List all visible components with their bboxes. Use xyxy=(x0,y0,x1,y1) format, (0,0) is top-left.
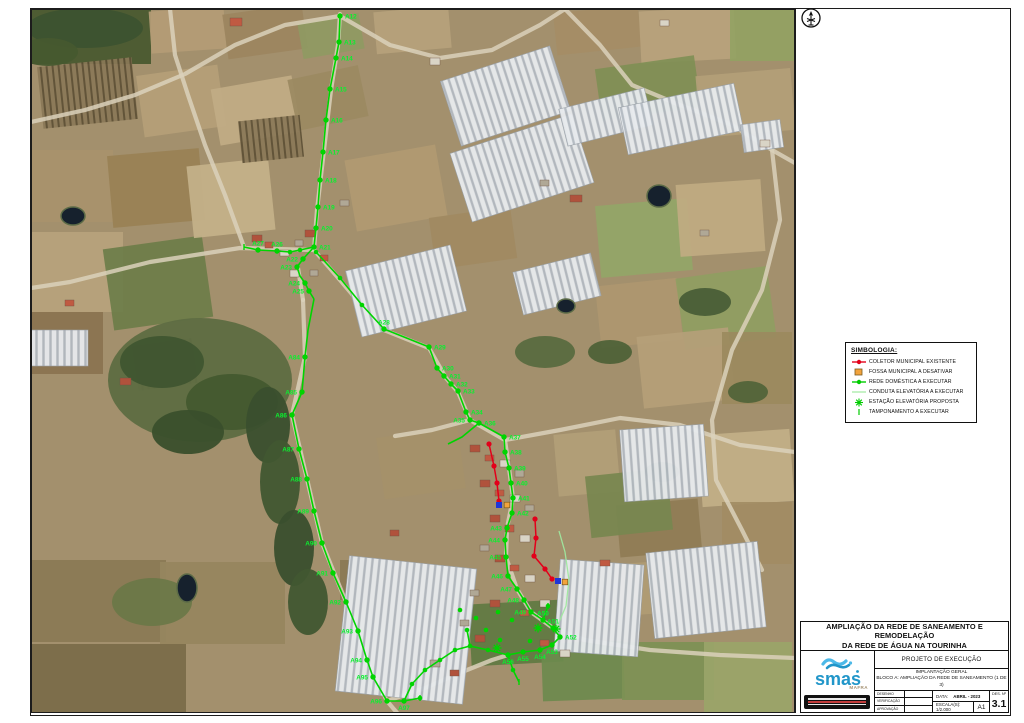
legend-box: SIMBOLOGIA: COLETOR MUNICIPAL EXISTENTEF… xyxy=(845,342,977,423)
legend-item-label: FOSSA MUNICIPAL A DESATIVAR xyxy=(869,369,953,375)
svg-text:A32: A32 xyxy=(456,381,468,388)
scale-value: ESCALA(S): 1/2.000 xyxy=(933,702,973,712)
legend-title: SIMBOLOGIA: xyxy=(851,347,971,354)
svg-text:A49: A49 xyxy=(514,609,526,616)
green-tick-icon xyxy=(851,408,869,416)
svg-text:A54: A54 xyxy=(534,654,546,661)
drawing-subtitle: IMPLANTAÇÃO GERAL BLOCO A: AMPLIAÇÃO DA … xyxy=(875,669,1008,691)
svg-text:A33: A33 xyxy=(463,388,475,395)
smas-logo: smas xyxy=(809,655,867,689)
svg-text:A42: A42 xyxy=(517,510,529,517)
svg-text:A36: A36 xyxy=(484,420,496,427)
legend-item-label: TAMPONAMENTO A EXECUTAR xyxy=(869,409,949,415)
signature-row: APROVAÇÃO xyxy=(875,706,932,712)
svg-text:A53: A53 xyxy=(546,649,558,656)
legend-item-label: CONDUTA ELEVATÓRIA A EXECUTAR xyxy=(869,389,963,395)
svg-text:A52: A52 xyxy=(565,634,577,641)
company-logo-cell: smas MAFRA xyxy=(801,651,875,712)
svg-text:A28: A28 xyxy=(378,320,390,327)
svg-text:A18: A18 xyxy=(325,177,337,184)
svg-text:A96: A96 xyxy=(370,698,382,705)
title-block: AMPLIAÇÃO DA REDE DE SANEAMENTO E REMODE… xyxy=(800,621,1009,714)
drawing-title: AMPLIAÇÃO DA REDE DE SANEAMENTO E REMODE… xyxy=(800,621,1009,651)
svg-text:A50: A50 xyxy=(537,611,549,618)
svg-text:A40: A40 xyxy=(516,480,528,487)
svg-text:A12: A12 xyxy=(345,13,357,20)
paper-format: A1 xyxy=(973,702,989,712)
svg-text:A31: A31 xyxy=(449,373,461,380)
svg-text:A13: A13 xyxy=(344,39,356,46)
svg-text:A94: A94 xyxy=(350,657,362,664)
legend-item-label: REDE DOMÉSTICA A EXECUTAR xyxy=(869,379,952,385)
signature-value xyxy=(905,698,932,704)
svg-text:A38: A38 xyxy=(510,449,522,456)
svg-text:A48: A48 xyxy=(507,597,519,604)
green-line-dot-icon xyxy=(851,378,869,386)
logo-subtext: MAFRA xyxy=(849,685,868,690)
svg-text:A15: A15 xyxy=(335,86,347,93)
drawing-sheet: A12A13A14A15A16A17A18A19A20A21A27A26A22A… xyxy=(0,0,1024,723)
date-cell: DATA: ABRIL - 2023 xyxy=(933,691,989,702)
svg-text:A55: A55 xyxy=(517,656,529,663)
pale-green-line-icon xyxy=(851,388,869,396)
map-viewport: A12A13A14A15A16A17A18A19A20A21A27A26A22A… xyxy=(31,9,796,713)
signature-value xyxy=(905,706,932,712)
legend-item: ESTAÇÃO ELEVATÓRIA PROPOSTA xyxy=(851,397,971,407)
company-address-strip xyxy=(804,695,870,709)
svg-text:A56: A56 xyxy=(502,659,514,666)
drawing-title-line2: DA REDE DE ÁGUA NA TOURINHA xyxy=(801,641,1008,651)
svg-text:A88: A88 xyxy=(290,476,302,483)
svg-text:A51: A51 xyxy=(547,619,559,626)
svg-text:A93: A93 xyxy=(341,628,353,635)
sheet-number: 3.1 xyxy=(990,696,1008,712)
svg-text:A84: A84 xyxy=(288,354,300,361)
svg-text:A45: A45 xyxy=(489,554,501,561)
svg-text:A14: A14 xyxy=(341,55,353,62)
svg-text:A43: A43 xyxy=(490,525,502,532)
signature-row: VERIFICAÇÃO xyxy=(875,698,932,705)
aerial-map: A12A13A14A15A16A17A18A19A20A21A27A26A22A… xyxy=(31,9,795,713)
svg-text:A17: A17 xyxy=(328,149,340,156)
svg-text:A85: A85 xyxy=(285,389,297,396)
svg-text:A91: A91 xyxy=(316,570,328,577)
svg-text:A46: A46 xyxy=(491,573,503,580)
legend-items: COLETOR MUNICIPAL EXISTENTEFOSSA MUNICIP… xyxy=(851,357,971,417)
svg-text:A47: A47 xyxy=(500,586,512,593)
sheet-number-cell: DES. Nº 3.1 xyxy=(990,691,1008,712)
legend-item-label: ESTAÇÃO ELEVATÓRIA PROPOSTA xyxy=(869,399,959,405)
legend-item: FOSSA MUNICIPAL A DESATIVAR xyxy=(851,367,971,377)
drawing-subtitle-line2: BLOCO A: AMPLIAÇÃO DA REDE DE SANEAMENTO… xyxy=(875,676,1008,689)
date-label: DATA: xyxy=(936,694,948,699)
svg-text:A27: A27 xyxy=(252,241,264,248)
signature-value xyxy=(905,691,932,697)
svg-text:A89: A89 xyxy=(297,508,309,515)
svg-text:A21: A21 xyxy=(319,244,331,251)
svg-text:A25: A25 xyxy=(292,288,304,295)
svg-text:A24: A24 xyxy=(288,280,300,287)
svg-text:A92: A92 xyxy=(329,599,341,606)
svg-text:A20: A20 xyxy=(321,225,333,232)
signature-table: DESENHOVERIFICAÇÃOAPROVAÇÃO xyxy=(875,691,933,712)
signature-label: VERIFICAÇÃO xyxy=(875,698,905,704)
svg-text:A95: A95 xyxy=(356,674,368,681)
svg-text:A35: A35 xyxy=(453,417,465,424)
red-line-dot-icon xyxy=(851,358,869,366)
signature-label: DESENHO xyxy=(875,691,905,697)
svg-text:A37: A37 xyxy=(509,434,521,441)
svg-text:A87: A87 xyxy=(282,446,294,453)
svg-text:A41: A41 xyxy=(518,495,530,502)
svg-text:A30: A30 xyxy=(442,365,454,372)
svg-text:A97: A97 xyxy=(398,705,410,712)
green-star-icon xyxy=(851,398,869,407)
svg-text:A86: A86 xyxy=(275,412,287,419)
north-arrow-icon xyxy=(799,6,823,30)
svg-text:A39: A39 xyxy=(514,465,526,472)
signature-row: DESENHO xyxy=(875,691,932,698)
svg-text:A90: A90 xyxy=(305,540,317,547)
signature-label: APROVAÇÃO xyxy=(875,706,905,712)
drawing-title-line1: AMPLIAÇÃO DA REDE DE SANEAMENTO E REMODE… xyxy=(801,622,1008,641)
svg-text:A23: A23 xyxy=(280,264,292,271)
svg-text:A26: A26 xyxy=(271,242,283,249)
date-value: ABRIL - 2023 xyxy=(953,694,980,699)
svg-text:A19: A19 xyxy=(323,204,335,211)
svg-text:A22: A22 xyxy=(286,256,298,263)
project-phase: PROJETO DE EXECUÇÃO xyxy=(875,651,1008,669)
svg-text:A16: A16 xyxy=(331,117,343,124)
legend-item-label: COLETOR MUNICIPAL EXISTENTE xyxy=(869,359,956,365)
legend-item: TAMPONAMENTO A EXECUTAR xyxy=(851,407,971,417)
scale-cell: ESCALA(S): 1/2.000 A1 xyxy=(933,702,989,712)
legend-item: COLETOR MUNICIPAL EXISTENTE xyxy=(851,357,971,367)
svg-text:A44: A44 xyxy=(488,537,500,544)
svg-text:A29: A29 xyxy=(434,344,446,351)
legend-item: CONDUTA ELEVATÓRIA A EXECUTAR xyxy=(851,387,971,397)
svg-text:A34: A34 xyxy=(471,409,483,416)
legend-item: REDE DOMÉSTICA A EXECUTAR xyxy=(851,377,971,387)
orange-square-icon xyxy=(851,368,869,376)
